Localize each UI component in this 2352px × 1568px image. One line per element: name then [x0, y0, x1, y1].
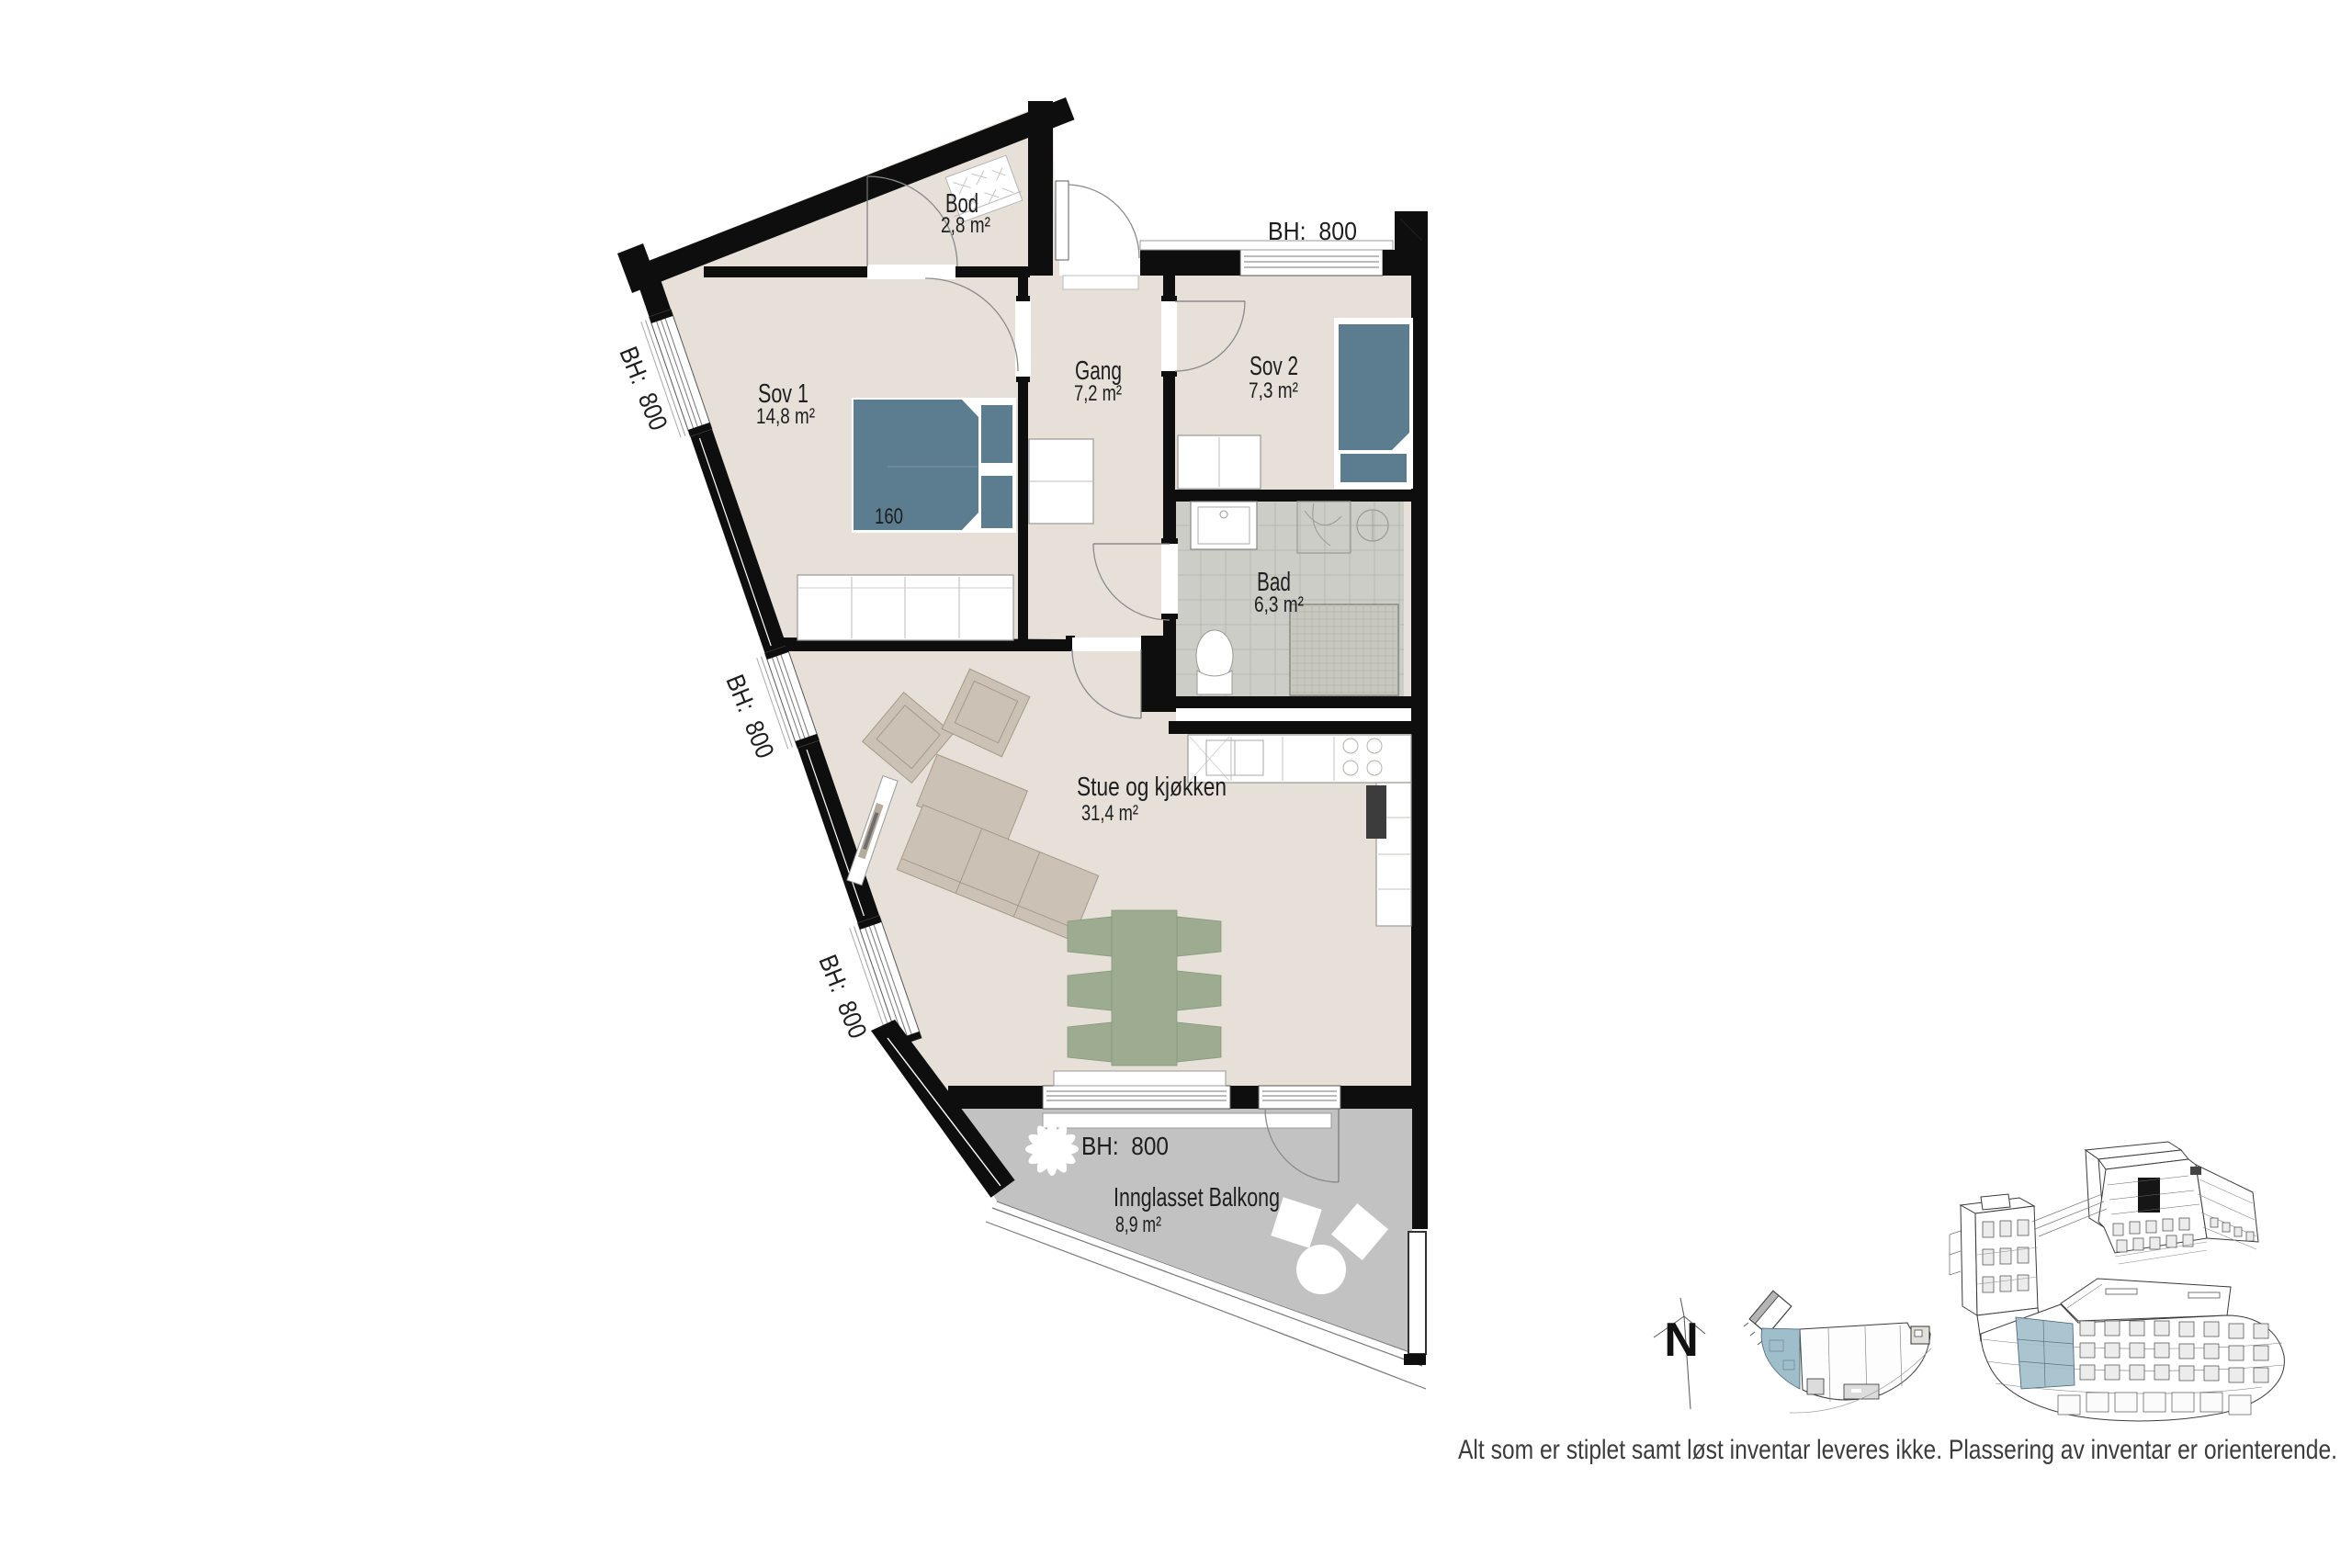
svg-text:31,4 m²: 31,4 m² — [1081, 801, 1138, 826]
svg-text:Alt som er stiplet samt løst i: Alt som er stiplet samt løst inventar le… — [1458, 1435, 2337, 1465]
svg-text:14,8 m²: 14,8 m² — [756, 404, 815, 429]
svg-text:8,9 m²: 8,9 m² — [1115, 1213, 1161, 1237]
svg-text:7,3 m²: 7,3 m² — [1249, 378, 1298, 403]
svg-text:N: N — [1664, 1314, 1699, 1367]
svg-text:2,8 m²: 2,8 m² — [941, 213, 990, 238]
svg-text:160: 160 — [875, 504, 903, 529]
svg-text:6,3 m²: 6,3 m² — [1254, 592, 1304, 617]
svg-text:BH: 800: BH: 800 — [1268, 217, 1357, 245]
svg-text:BH: 800: BH: 800 — [1081, 1132, 1169, 1160]
svg-text:Sov 2: Sov 2 — [1249, 352, 1298, 381]
svg-text:7,2 m²: 7,2 m² — [1074, 381, 1122, 406]
svg-text:Innglasset Balkong: Innglasset Balkong — [1114, 1183, 1280, 1213]
svg-text:Stue og kjøkken: Stue og kjøkken — [1077, 773, 1227, 802]
